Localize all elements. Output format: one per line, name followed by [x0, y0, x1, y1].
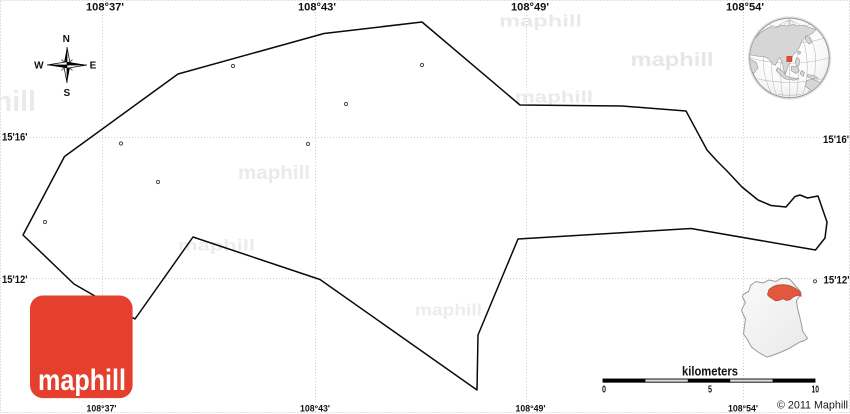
svg-text:10: 10 — [812, 385, 820, 396]
svg-text:15'12': 15'12' — [2, 274, 28, 286]
svg-text:maphill: maphill — [499, 12, 582, 31]
svg-text:5: 5 — [708, 385, 712, 396]
svg-text:108°43': 108°43' — [300, 404, 330, 414]
svg-text:15'12': 15'12' — [824, 275, 850, 287]
svg-text:108°43': 108°43' — [298, 2, 336, 14]
svg-text:maphill: maphill — [38, 364, 126, 397]
svg-text:108°37': 108°37' — [86, 2, 124, 14]
svg-text:N: N — [63, 34, 70, 45]
svg-text:S: S — [63, 88, 70, 99]
svg-text:maphill: maphill — [238, 163, 310, 184]
svg-text:W: W — [34, 61, 44, 72]
svg-text:maphill: maphill — [178, 238, 255, 255]
svg-text:108°49': 108°49' — [516, 404, 546, 414]
svg-text:108°54': 108°54' — [726, 2, 764, 14]
svg-text:108°49': 108°49' — [511, 2, 549, 14]
svg-text:maphill: maphill — [631, 50, 714, 71]
svg-text:maphill: maphill — [415, 301, 482, 320]
svg-text:E: E — [90, 61, 97, 72]
svg-text:0: 0 — [602, 385, 606, 396]
svg-text:108°54': 108°54' — [728, 404, 758, 414]
svg-text:maphill: maphill — [0, 86, 36, 118]
svg-text:15'16': 15'16' — [823, 134, 849, 146]
svg-text:15'16': 15'16' — [2, 132, 28, 144]
svg-text:108°37': 108°37' — [87, 404, 117, 414]
svg-text:© 2011 Maphill: © 2011 Maphill — [777, 400, 848, 412]
svg-text:kilometers: kilometers — [682, 364, 738, 379]
